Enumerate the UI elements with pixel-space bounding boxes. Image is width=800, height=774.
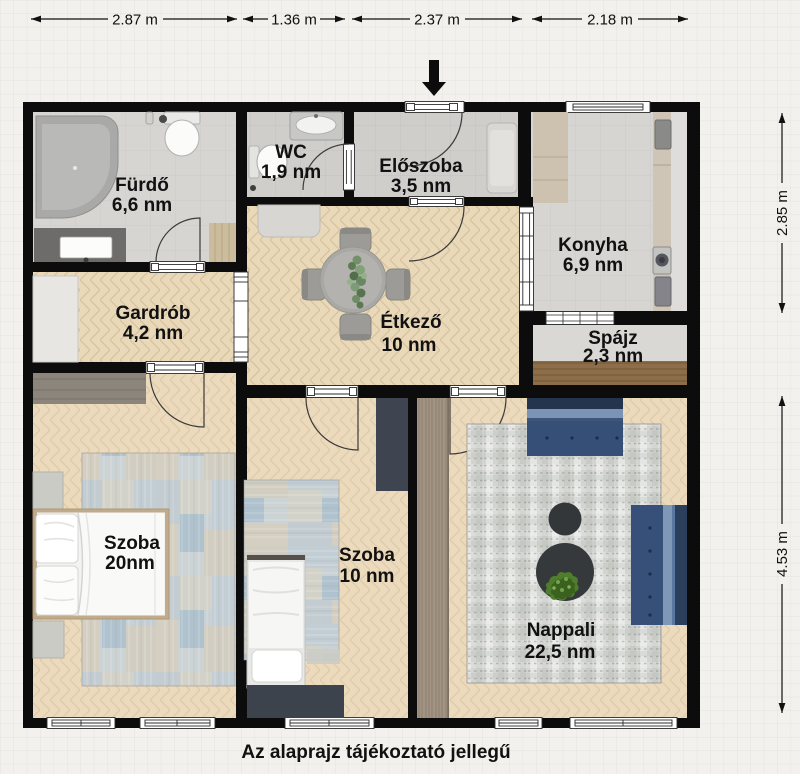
svg-text:6,9 nm: 6,9 nm [563,255,623,276]
svg-text:2.37 m: 2.37 m [414,12,460,29]
svg-text:3,5 nm: 3,5 nm [391,176,451,197]
svg-text:6,6 nm: 6,6 nm [112,195,172,216]
svg-text:Gardrób: Gardrób [116,303,191,324]
svg-text:4,2 nm: 4,2 nm [123,323,183,344]
svg-text:Étkező: Étkező [380,311,441,333]
svg-text:2,3 nm: 2,3 nm [583,346,643,367]
svg-text:10 nm: 10 nm [340,566,395,587]
svg-text:Nappali: Nappali [527,620,596,641]
svg-text:4.53 m: 4.53 m [774,531,791,577]
svg-text:1,9 nm: 1,9 nm [261,162,321,183]
svg-text:10 nm: 10 nm [382,335,437,356]
svg-text:Előszoba: Előszoba [379,156,463,177]
svg-text:Szoba: Szoba [104,533,160,554]
svg-text:2.87 m: 2.87 m [112,12,158,29]
svg-text:Fürdő: Fürdő [115,175,169,196]
svg-text:Konyha: Konyha [558,235,628,256]
svg-text:2.85 m: 2.85 m [774,190,791,236]
svg-text:22,5 nm: 22,5 nm [525,642,596,663]
svg-text:Az alaprajz tájékoztató jelleg: Az alaprajz tájékoztató jellegű [241,742,510,763]
svg-text:2.18 m: 2.18 m [587,12,633,29]
svg-text:1.36 m: 1.36 m [271,12,317,29]
svg-text:20nm: 20nm [105,553,155,574]
svg-text:Szoba: Szoba [339,545,395,566]
svg-text:WC: WC [275,142,307,163]
